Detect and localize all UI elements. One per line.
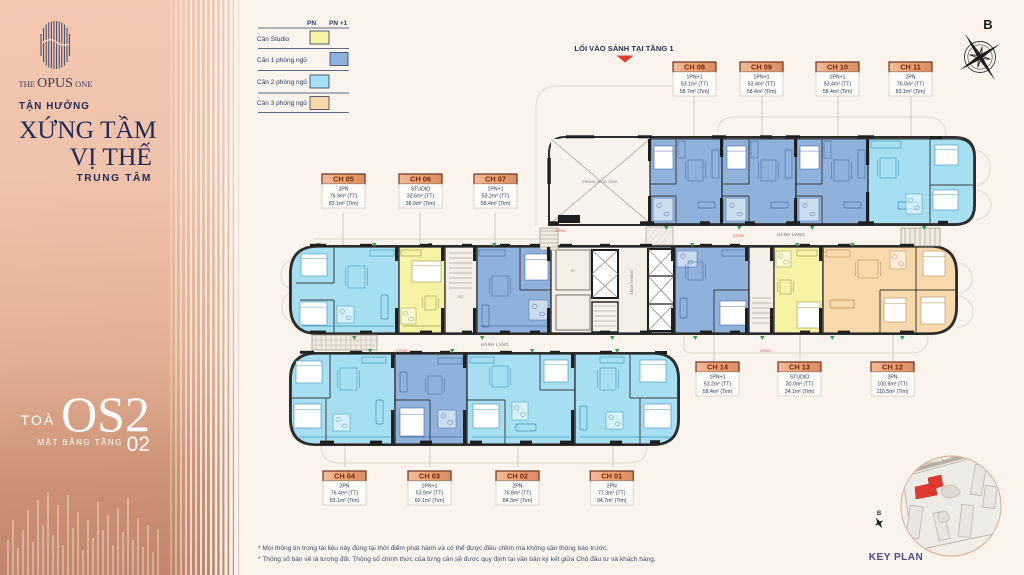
svg-text:32.6m² (TT): 32.6m² (TT) bbox=[407, 194, 435, 200]
svg-text:CH 01: CH 01 bbox=[601, 472, 622, 481]
svg-text:S-P004: S-P004 bbox=[555, 229, 566, 233]
svg-text:* Mọi thông tin trong tài liệu: * Mọi thông tin trong tài liệu này đúng … bbox=[258, 543, 608, 552]
svg-text:Căn Studio: Căn Studio bbox=[257, 36, 290, 43]
svg-text:1PN+1: 1PN+1 bbox=[421, 484, 437, 490]
svg-text:76.0m² (TT): 76.0m² (TT) bbox=[897, 82, 925, 88]
svg-text:CH 11: CH 11 bbox=[900, 63, 921, 72]
svg-text:2PN: 2PN bbox=[607, 484, 617, 490]
svg-text:CH 07: CH 07 bbox=[485, 175, 506, 184]
svg-text:K7: K7 bbox=[571, 269, 575, 273]
svg-text:SẢNH THANG: SẢNH THANG bbox=[629, 270, 634, 295]
svg-text:84.7m² (Tim): 84.7m² (Tim) bbox=[597, 498, 627, 504]
svg-text:53.4m² (TT): 53.4m² (TT) bbox=[824, 82, 852, 88]
svg-text:58.7m² (Tim): 58.7m² (Tim) bbox=[680, 89, 710, 95]
svg-text:S-P006: S-P006 bbox=[733, 234, 744, 238]
svg-text:34.1m² (Tim): 34.1m² (Tim) bbox=[785, 389, 815, 395]
svg-text:83.1m² (Tim): 83.1m² (Tim) bbox=[330, 498, 360, 504]
svg-text:53.2m² (TT): 53.2m² (TT) bbox=[482, 194, 510, 200]
svg-text:83.1m² (Tim): 83.1m² (Tim) bbox=[329, 201, 359, 207]
svg-text:B: B bbox=[983, 17, 992, 32]
svg-text:PHÒNG SHCĐ TẦNG: PHÒNG SHCĐ TẦNG bbox=[582, 179, 617, 184]
svg-text:CH 03: CH 03 bbox=[419, 472, 440, 481]
svg-text:2PN: 2PN bbox=[338, 187, 348, 193]
svg-text:3PN: 3PN bbox=[887, 375, 897, 381]
svg-text:1PN+1: 1PN+1 bbox=[753, 75, 769, 81]
svg-text:STUDIO: STUDIO bbox=[790, 375, 810, 381]
svg-text:CH 14: CH 14 bbox=[707, 363, 729, 372]
svg-text:53.2m² (TT): 53.2m² (TT) bbox=[704, 382, 732, 388]
svg-text:76.8m² (TT): 76.8m² (TT) bbox=[504, 491, 532, 497]
svg-text:LỐI VÀO SẢNH TẠI TẦNG 1: LỐI VÀO SẢNH TẠI TẦNG 1 bbox=[574, 43, 674, 53]
svg-text:CH 05: CH 05 bbox=[333, 175, 354, 184]
svg-text:CH 12: CH 12 bbox=[882, 363, 903, 372]
svg-text:83.1m² (Tim): 83.1m² (Tim) bbox=[896, 89, 926, 95]
svg-text:CH 02: CH 02 bbox=[507, 472, 528, 481]
svg-text:Căn 2 phòng ngủ: Căn 2 phòng ngủ bbox=[257, 78, 307, 86]
svg-text:S-P005: S-P005 bbox=[396, 349, 407, 353]
svg-text:HÀNH LANG: HÀNH LANG bbox=[777, 232, 805, 237]
svg-text:K2: K2 bbox=[459, 294, 465, 299]
svg-text:* Thông số bản vẽ là tương đối: * Thông số bản vẽ là tương đối. Thông số… bbox=[258, 554, 656, 563]
svg-text:1PN+1: 1PN+1 bbox=[686, 75, 702, 81]
svg-text:58.4m² (Tim): 58.4m² (Tim) bbox=[703, 389, 733, 395]
svg-text:CH 09: CH 09 bbox=[751, 63, 772, 72]
svg-text:Căn 3 phòng ngủ: Căn 3 phòng ngủ bbox=[257, 99, 307, 107]
svg-text:Căn 1 phòng ngủ: Căn 1 phòng ngủ bbox=[257, 56, 307, 64]
svg-text:38.0m² (Tim): 38.0m² (Tim) bbox=[406, 201, 436, 207]
svg-text:CH 13: CH 13 bbox=[789, 363, 810, 372]
svg-text:77.3m² (TT): 77.3m² (TT) bbox=[598, 491, 626, 497]
svg-text:76.4m² (TT): 76.4m² (TT) bbox=[331, 491, 359, 497]
svg-text:58.4m² (Tim): 58.4m² (Tim) bbox=[747, 89, 777, 95]
svg-text:2PN: 2PN bbox=[339, 484, 349, 490]
svg-text:2PN: 2PN bbox=[905, 75, 915, 81]
svg-text:110.5m² (Tim): 110.5m² (Tim) bbox=[877, 389, 909, 395]
svg-text:100.9m² (TT): 100.9m² (TT) bbox=[877, 382, 908, 388]
svg-text:1PN+1: 1PN+1 bbox=[709, 375, 725, 381]
svg-text:CH 06: CH 06 bbox=[410, 175, 431, 184]
svg-text:B: B bbox=[877, 511, 882, 517]
svg-text:60.1m² (Tim): 60.1m² (Tim) bbox=[415, 498, 445, 504]
svg-text:53.9m² (TT): 53.9m² (TT) bbox=[416, 491, 444, 497]
svg-text:1PN+1: 1PN+1 bbox=[829, 75, 845, 81]
svg-text:58.4m² (Tim): 58.4m² (Tim) bbox=[823, 89, 853, 95]
svg-text:2PN: 2PN bbox=[512, 484, 522, 490]
svg-text:KEY PLAN: KEY PLAN bbox=[869, 552, 923, 563]
svg-text:1PN+1: 1PN+1 bbox=[487, 187, 503, 193]
svg-text:58.4m² (Tim): 58.4m² (Tim) bbox=[481, 201, 511, 207]
svg-text:HÀNH LANG: HÀNH LANG bbox=[481, 342, 509, 347]
svg-text:S-P007: S-P007 bbox=[760, 349, 771, 353]
svg-text:30.0m² (TT): 30.0m² (TT) bbox=[786, 382, 814, 388]
svg-text:STUDIO: STUDIO bbox=[411, 187, 431, 193]
svg-text:CH 10: CH 10 bbox=[827, 63, 848, 72]
svg-text:53.4m² (TT): 53.4m² (TT) bbox=[748, 82, 776, 88]
svg-text:76.9m² (TT): 76.9m² (TT) bbox=[330, 194, 358, 200]
svg-text:53.1m² (TT): 53.1m² (TT) bbox=[681, 82, 709, 88]
svg-text:CH 04: CH 04 bbox=[334, 472, 356, 481]
svg-text:84.3m² (Tim): 84.3m² (Tim) bbox=[503, 498, 533, 504]
svg-text:CH 08: CH 08 bbox=[684, 63, 705, 72]
svg-text:PN: PN bbox=[307, 20, 316, 27]
svg-text:PN +1: PN +1 bbox=[329, 20, 348, 27]
